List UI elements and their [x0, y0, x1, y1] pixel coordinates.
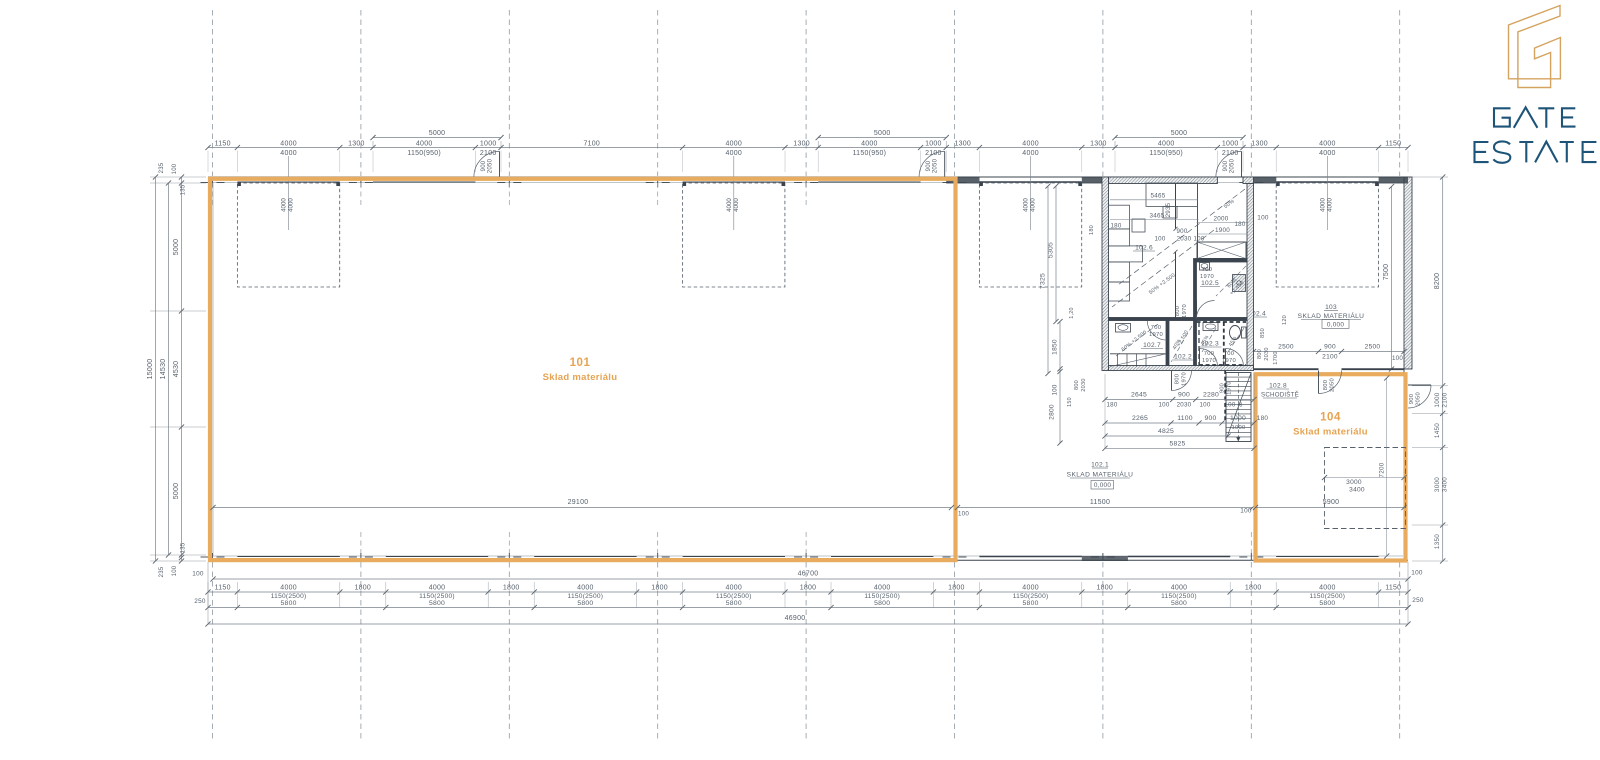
- svg-text:1970: 1970: [1222, 358, 1236, 364]
- svg-text:5900: 5900: [1323, 499, 1340, 506]
- svg-text:180: 180: [1089, 225, 1095, 235]
- svg-text:1150(2500): 1150(2500): [419, 593, 455, 600]
- svg-text:900: 900: [1409, 394, 1415, 404]
- svg-text:5800: 5800: [1319, 600, 1335, 607]
- svg-text:1150(950): 1150(950): [853, 150, 887, 157]
- svg-text:5825: 5825: [1169, 440, 1185, 447]
- svg-text:1000: 1000: [1232, 425, 1246, 431]
- svg-text:1800: 1800: [1097, 585, 1114, 592]
- svg-text:800: 800: [1074, 380, 1080, 390]
- svg-text:4000: 4000: [1158, 141, 1175, 148]
- svg-text:800: 800: [1323, 380, 1329, 390]
- svg-text:1800: 1800: [800, 585, 817, 592]
- svg-text:4530: 4530: [173, 361, 180, 378]
- svg-text:1970: 1970: [1200, 274, 1214, 280]
- svg-text:4000: 4000: [1319, 198, 1326, 212]
- svg-text:100: 100: [1411, 570, 1423, 577]
- svg-text:102.7: 102.7: [1143, 342, 1161, 349]
- svg-text:104: 104: [1320, 412, 1341, 424]
- svg-text:5800: 5800: [726, 600, 742, 607]
- svg-text:100: 100: [172, 565, 178, 576]
- svg-text:2280: 2280: [1203, 392, 1219, 399]
- svg-text:7100: 7100: [584, 141, 601, 148]
- svg-text:2100: 2100: [1442, 392, 1449, 407]
- svg-text:5000: 5000: [1171, 130, 1188, 137]
- svg-text:1300: 1300: [1090, 141, 1107, 148]
- svg-text:4825: 4825: [1158, 428, 1174, 435]
- svg-text:4000: 4000: [726, 585, 743, 592]
- svg-text:1000: 1000: [1222, 141, 1239, 148]
- svg-text:2000: 2000: [1213, 216, 1228, 223]
- svg-text:4000: 4000: [726, 141, 743, 148]
- svg-text:2050: 2050: [1230, 158, 1236, 173]
- svg-text:2500: 2500: [1278, 344, 1294, 351]
- svg-text:5000: 5000: [173, 483, 180, 500]
- svg-text:4000: 4000: [280, 150, 297, 157]
- svg-text:120: 120: [1282, 315, 1288, 325]
- svg-text:5800: 5800: [874, 600, 890, 607]
- svg-text:1800: 1800: [503, 585, 520, 592]
- svg-text:5465: 5465: [1150, 193, 1165, 200]
- svg-text:1000: 1000: [1230, 415, 1246, 422]
- svg-text:1150: 1150: [215, 141, 231, 148]
- svg-text:2500: 2500: [1365, 344, 1381, 351]
- svg-text:1800: 1800: [651, 585, 668, 592]
- svg-text:4000: 4000: [1319, 585, 1336, 592]
- svg-text:900: 900: [1176, 228, 1187, 235]
- svg-text:1900: 1900: [1215, 227, 1230, 234]
- svg-text:4000: 4000: [1022, 141, 1039, 148]
- svg-text:2050: 2050: [1330, 378, 1336, 392]
- svg-text:2030: 2030: [1264, 347, 1270, 360]
- svg-text:4000: 4000: [281, 198, 288, 212]
- svg-text:800: 800: [1257, 349, 1263, 359]
- svg-text:1970: 1970: [1149, 332, 1163, 338]
- svg-text:100: 100: [1199, 402, 1210, 409]
- svg-text:1150(950): 1150(950): [407, 150, 441, 157]
- svg-text:1150: 1150: [1385, 141, 1401, 148]
- svg-text:102.2: 102.2: [1174, 354, 1192, 361]
- svg-text:SKLAD MATERIÁLU: SKLAD MATERIÁLU: [1298, 311, 1365, 320]
- svg-text:2030: 2030: [1081, 378, 1087, 391]
- svg-text:180: 180: [1110, 223, 1121, 230]
- svg-text:5305: 5305: [1048, 242, 1055, 258]
- svg-text:4000: 4000: [280, 585, 297, 592]
- svg-text:150: 150: [1067, 397, 1073, 407]
- svg-text:2645: 2645: [1131, 392, 1147, 399]
- svg-text:102.8: 102.8: [1269, 383, 1287, 390]
- svg-text:4000: 4000: [1030, 198, 1037, 212]
- svg-text:1700: 1700: [1273, 351, 1279, 364]
- svg-text:4000: 4000: [416, 141, 433, 148]
- svg-text:4000: 4000: [1022, 585, 1039, 592]
- svg-text:900: 900: [1223, 160, 1229, 171]
- svg-text:1970: 1970: [1182, 304, 1188, 318]
- svg-text:100: 100: [1193, 236, 1204, 243]
- svg-text:250: 250: [194, 598, 206, 605]
- svg-text:1300: 1300: [348, 141, 365, 148]
- svg-text:1970: 1970: [1182, 372, 1188, 386]
- svg-text:1000: 1000: [1434, 392, 1441, 407]
- svg-text:3465: 3465: [1149, 213, 1164, 220]
- svg-text:14530: 14530: [160, 359, 167, 380]
- svg-text:100: 100: [1052, 384, 1059, 395]
- svg-text:1850: 1850: [1052, 339, 1059, 355]
- svg-text:2100: 2100: [480, 150, 497, 157]
- svg-text:100: 100: [1392, 355, 1403, 362]
- svg-text:5000: 5000: [874, 130, 891, 137]
- svg-text:900: 900: [1324, 344, 1336, 351]
- svg-text:0,000: 0,000: [1327, 322, 1344, 329]
- svg-text:1150(2500): 1150(2500): [1161, 593, 1197, 600]
- svg-text:1150(2500): 1150(2500): [1310, 593, 1346, 600]
- svg-text:4000: 4000: [288, 198, 295, 212]
- svg-text:1150(950): 1150(950): [1149, 150, 1183, 157]
- svg-text:100: 100: [172, 163, 178, 174]
- svg-text:15000: 15000: [147, 359, 154, 380]
- svg-text:1150: 1150: [215, 585, 231, 592]
- svg-text:4000: 4000: [1326, 198, 1333, 212]
- svg-text:1300: 1300: [793, 141, 810, 148]
- svg-text:100: 100: [1224, 402, 1235, 409]
- svg-text:4000: 4000: [861, 141, 878, 148]
- svg-text:1000: 1000: [480, 141, 497, 148]
- svg-text:2050: 2050: [488, 158, 494, 173]
- svg-text:46700: 46700: [798, 571, 819, 578]
- svg-text:5800: 5800: [281, 600, 297, 607]
- svg-text:102.1: 102.1: [1091, 462, 1109, 469]
- svg-text:1970: 1970: [1202, 358, 1216, 364]
- svg-text:5000: 5000: [429, 130, 446, 137]
- svg-text:Sklad materiálu: Sklad materiálu: [543, 372, 618, 383]
- svg-text:1450: 1450: [1434, 423, 1441, 438]
- svg-text:100: 100: [192, 571, 204, 578]
- svg-text:29100: 29100: [568, 499, 589, 506]
- svg-text:1970: 1970: [1227, 381, 1233, 394]
- svg-text:180: 180: [1257, 415, 1269, 422]
- svg-text:1800: 1800: [948, 585, 965, 592]
- svg-text:100: 100: [1240, 508, 1252, 515]
- svg-text:2100: 2100: [1222, 150, 1239, 157]
- svg-text:4000: 4000: [280, 141, 297, 148]
- svg-text:4000: 4000: [1319, 150, 1336, 157]
- svg-text:1800: 1800: [1245, 585, 1262, 592]
- svg-text:1150: 1150: [1385, 585, 1401, 592]
- svg-text:5800: 5800: [1171, 600, 1187, 607]
- svg-text:Sklad materiálu: Sklad materiálu: [1293, 427, 1368, 438]
- svg-text:7200: 7200: [1379, 462, 1386, 477]
- svg-text:3400: 3400: [1442, 477, 1449, 492]
- svg-text:SCHODIŠTĚ: SCHODIŠTĚ: [1261, 391, 1299, 399]
- svg-text:1150(2500): 1150(2500): [864, 593, 900, 600]
- svg-text:135: 135: [181, 184, 187, 195]
- svg-text:-8: -8: [1237, 403, 1242, 409]
- svg-text:2050: 2050: [1416, 392, 1422, 406]
- svg-text:1300: 1300: [1251, 141, 1268, 148]
- svg-text:4000: 4000: [726, 150, 743, 157]
- svg-text:3000: 3000: [1434, 477, 1441, 492]
- svg-text:4000: 4000: [1023, 198, 1030, 212]
- svg-text:SKLAD MATERIÁLU: SKLAD MATERIÁLU: [1067, 470, 1134, 479]
- svg-text:900: 900: [1204, 415, 1216, 422]
- svg-text:1150(2500): 1150(2500): [568, 593, 604, 600]
- svg-text:2800: 2800: [1049, 404, 1056, 420]
- svg-text:850: 850: [1260, 328, 1266, 338]
- svg-text:4000: 4000: [726, 198, 733, 212]
- svg-text:100: 100: [1257, 215, 1269, 222]
- svg-text:2050: 2050: [933, 158, 939, 173]
- svg-text:5800: 5800: [429, 600, 445, 607]
- svg-text:2030: 2030: [1177, 402, 1192, 409]
- svg-text:1150(2500): 1150(2500): [716, 593, 752, 600]
- svg-text:250: 250: [1412, 597, 1424, 604]
- svg-text:1100: 1100: [1177, 415, 1193, 422]
- svg-text:100: 100: [1158, 402, 1169, 409]
- svg-text:2030: 2030: [1177, 236, 1192, 243]
- svg-text:4000: 4000: [1319, 141, 1336, 148]
- svg-text:5000: 5000: [173, 239, 180, 256]
- svg-text:103: 103: [1325, 304, 1337, 311]
- svg-text:101: 101: [570, 357, 591, 369]
- svg-text:235: 235: [159, 566, 165, 577]
- svg-text:7325: 7325: [1040, 273, 1047, 289]
- svg-text:180: 180: [1234, 221, 1245, 228]
- svg-text:1800: 1800: [355, 585, 372, 592]
- svg-text:2935: 2935: [1165, 202, 1172, 217]
- svg-text:4000: 4000: [874, 585, 891, 592]
- svg-text:900: 900: [1220, 383, 1226, 393]
- svg-text:4000: 4000: [429, 585, 446, 592]
- svg-text:11500: 11500: [1090, 499, 1110, 506]
- svg-text:8200: 8200: [1434, 273, 1441, 290]
- svg-text:1300: 1300: [955, 141, 972, 148]
- svg-text:3000: 3000: [1346, 479, 1362, 486]
- svg-text:900: 900: [481, 160, 487, 171]
- svg-text:3400: 3400: [1349, 487, 1365, 494]
- svg-text:235: 235: [159, 162, 165, 173]
- svg-text:46900: 46900: [785, 615, 806, 622]
- svg-text:1350: 1350: [1434, 534, 1441, 549]
- svg-text:0,000: 0,000: [1094, 482, 1111, 489]
- svg-text:4000: 4000: [733, 198, 740, 212]
- svg-text:1000: 1000: [925, 141, 942, 148]
- svg-text:800: 800: [1175, 306, 1181, 316]
- svg-text:100: 100: [958, 511, 969, 518]
- svg-text:102.5: 102.5: [1201, 280, 1219, 287]
- svg-text:4000: 4000: [577, 585, 594, 592]
- svg-text:135: 135: [181, 542, 187, 553]
- svg-text:180: 180: [1106, 402, 1117, 409]
- svg-text:1150(2500): 1150(2500): [271, 593, 307, 600]
- svg-text:800: 800: [1175, 374, 1181, 384]
- svg-text:2100: 2100: [1322, 354, 1338, 361]
- svg-text:100: 100: [1154, 236, 1165, 243]
- svg-text:900: 900: [1178, 392, 1190, 399]
- svg-text:4000: 4000: [1171, 585, 1188, 592]
- svg-text:2265: 2265: [1132, 415, 1148, 422]
- svg-text:4000: 4000: [1022, 150, 1039, 157]
- svg-text:1150(2500): 1150(2500): [1013, 593, 1049, 600]
- svg-text:5800: 5800: [1023, 600, 1039, 607]
- svg-text:1,20: 1,20: [1069, 307, 1075, 319]
- svg-text:7500: 7500: [1383, 264, 1390, 281]
- svg-text:2100: 2100: [925, 150, 942, 157]
- svg-text:900: 900: [926, 160, 932, 171]
- svg-text:5800: 5800: [577, 600, 593, 607]
